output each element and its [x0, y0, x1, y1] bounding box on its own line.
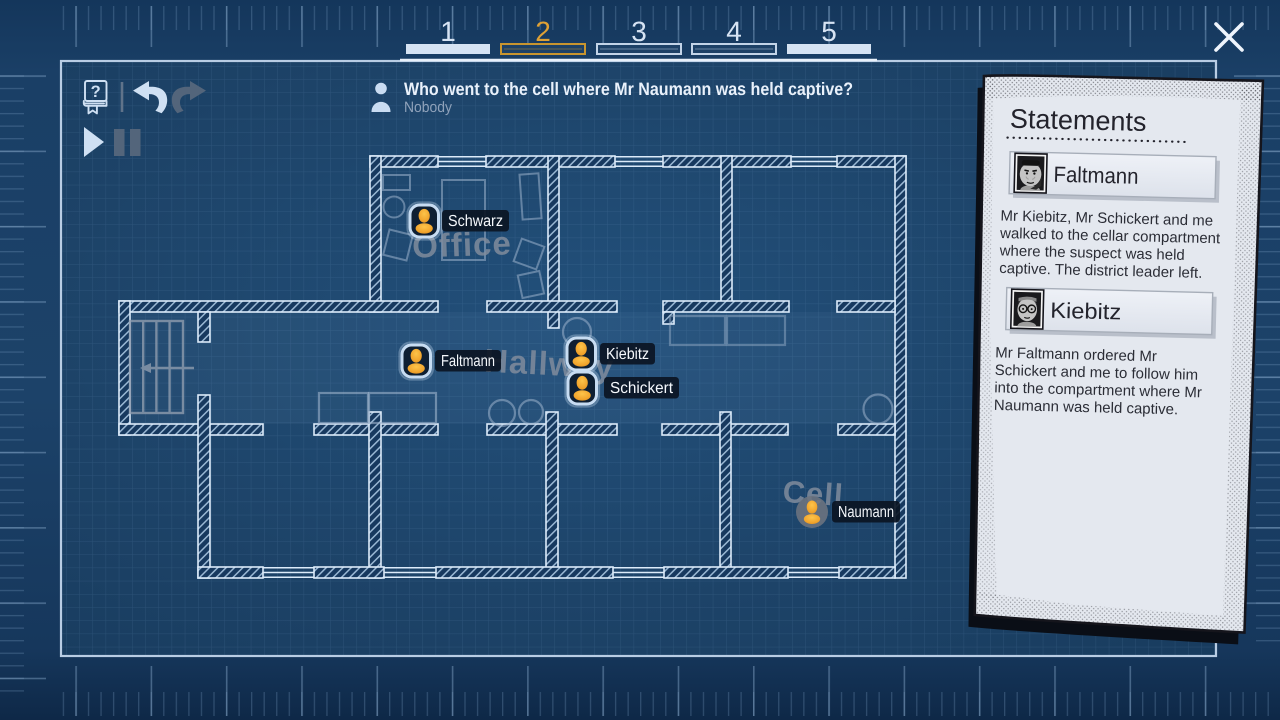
- svg-text:Kiebitz: Kiebitz: [1050, 298, 1122, 325]
- svg-text:2: 2: [535, 16, 551, 47]
- svg-text:Faltmann: Faltmann: [1053, 162, 1139, 189]
- svg-text:Statements: Statements: [1010, 104, 1147, 137]
- svg-text:Nobody: Nobody: [404, 99, 452, 116]
- svg-text:Kiebitz: Kiebitz: [606, 346, 649, 363]
- svg-text:Who went to the cell where Mr: Who went to the cell where Mr Naumann wa…: [404, 79, 853, 99]
- svg-text:5: 5: [821, 16, 837, 47]
- svg-text:Schwarz: Schwarz: [448, 213, 503, 230]
- svg-text:4: 4: [726, 16, 742, 47]
- svg-text:1: 1: [440, 16, 456, 47]
- svg-text:?: ?: [91, 83, 101, 101]
- svg-text:Naumann: Naumann: [838, 504, 894, 521]
- svg-text:3: 3: [631, 16, 647, 47]
- svg-text:Faltmann: Faltmann: [441, 353, 495, 370]
- svg-text:Schickert: Schickert: [610, 380, 674, 397]
